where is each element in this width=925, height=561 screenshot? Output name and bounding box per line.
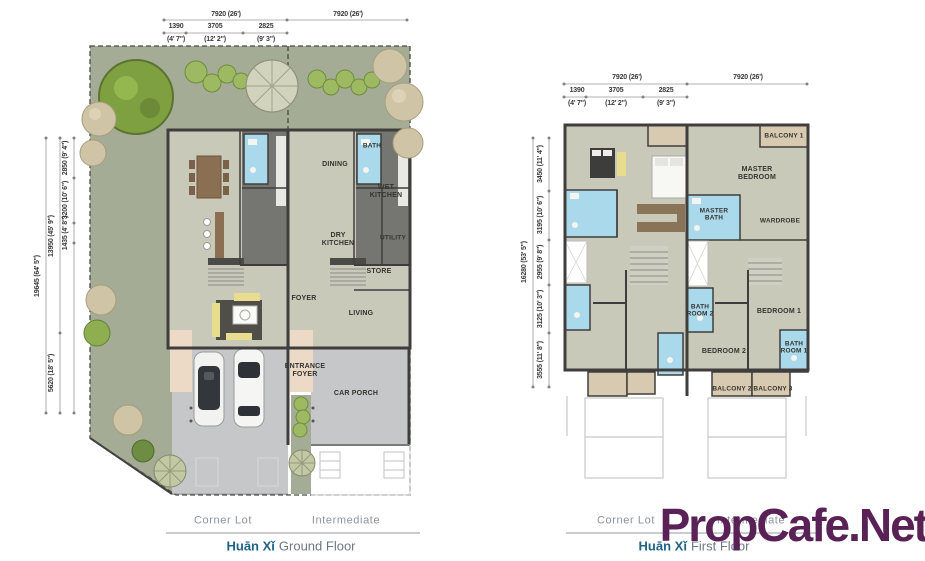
gf-title-name: Huān Xǐ <box>227 539 275 554</box>
ff-caption-corner-lot: Corner Lot <box>597 516 655 527</box>
gf-caption-corner-lot: Corner Lot <box>194 516 252 527</box>
ff-dim-left-seg: 2955 (9' 8") <box>537 245 545 280</box>
ff-dim-mm: 3705 <box>609 87 624 95</box>
watermark: PropCafe.Net <box>660 499 925 552</box>
floorplan-graphics <box>0 0 925 561</box>
ff-roof-outline <box>567 396 806 478</box>
ff-dim-left-seg: 3450 (11' 4") <box>537 145 545 183</box>
floorplan-page: 7920 (26') 7920 (26') 1390 3705 2825 (4'… <box>0 0 925 561</box>
room-label-bedroom-1: BEDROOM 1 <box>757 308 801 316</box>
ff-dim-left-total: 16280 (53' 5") <box>521 241 529 283</box>
shrub <box>82 102 116 136</box>
bush <box>84 320 110 346</box>
room-label-master-bath: MASTER BATH <box>692 208 736 223</box>
ff-dim-mm: 2825 <box>659 87 674 95</box>
shrub <box>113 405 143 435</box>
gf-dim-mm: 1390 <box>169 23 184 31</box>
room-label-bath-room-2: BATH ROOM 2 <box>683 304 717 319</box>
ff-dim-ft: (9' 3") <box>657 100 675 108</box>
room-label-car-porch: CAR PORCH <box>334 390 378 398</box>
gf-dim-mm: 2825 <box>259 23 274 31</box>
room-label-utility: UTILITY <box>380 234 406 241</box>
shrub <box>86 285 116 315</box>
gf-dim-left-seg: 1435 (4' 8") <box>62 216 70 251</box>
ff-dim-total-left: 7920 (26') <box>612 74 642 82</box>
ff-dim-left-seg: 3555 (11' 8") <box>537 341 545 379</box>
tree <box>289 450 315 476</box>
tree <box>154 455 186 487</box>
car <box>194 352 224 426</box>
shrub <box>373 49 407 83</box>
room-label-wet-kitchen: WET KITCHEN <box>363 184 409 200</box>
room-label-balcony-2: BALCONY 2 <box>712 385 751 392</box>
room-label-entrance-foyer: ENTRANCE FOYER <box>275 363 335 379</box>
gf-dim-left-seg: 2850 (9' 4") <box>62 141 70 176</box>
room-label-living: LIVING <box>349 310 374 318</box>
ff-dim-ft: (4' 7") <box>568 100 586 108</box>
car <box>234 349 264 427</box>
gf-caption-intermediate: Intermediate <box>312 516 380 527</box>
ff-dim-total-right: 7920 (26') <box>733 74 763 82</box>
room-label-master-bedroom: MASTER BEDROOM <box>726 166 788 182</box>
room-label-bedroom-2: BEDROOM 2 <box>702 348 746 356</box>
gf-dim-total-left: 7920 (26') <box>211 11 241 19</box>
gf-title-floor: Ground Floor <box>279 539 356 554</box>
ff-dim-left-seg: 3125 (10' 3") <box>537 290 545 328</box>
gf-dim-left-seg: 3200 (10' 6") <box>62 181 70 219</box>
gf-title: Huān XǐGround Floor <box>227 540 356 553</box>
gf-dim-ft: (4' 7") <box>167 36 185 44</box>
room-label-dining: DINING <box>322 161 348 169</box>
gf-dim-total-right: 7920 (26') <box>333 11 363 19</box>
gf-dim-left-mid: 13950 (45' 9") <box>48 215 56 257</box>
gf-dim-mm: 3705 <box>208 23 223 31</box>
gf-dim-ft: (12' 2") <box>204 36 226 44</box>
gf-dim-ft: (9' 3") <box>257 36 275 44</box>
gf-dim-left-mid: 5620 (18' 5") <box>48 354 56 392</box>
ff-dim-ft: (12' 2") <box>605 100 627 108</box>
room-label-balcony-3: BALCONY 3 <box>753 385 792 392</box>
bush <box>132 440 154 462</box>
room-label-wardrobe: WARDROBE <box>760 217 800 224</box>
room-label-store: STORE <box>367 268 392 276</box>
shrub <box>80 140 106 166</box>
shrub <box>393 128 423 158</box>
room-label-bath-room-1: BATH ROOM 1 <box>778 341 810 356</box>
room-label-balcony-1: BALCONY 1 <box>764 132 803 139</box>
room-label-foyer: FOYER <box>291 295 316 303</box>
tree <box>246 60 298 112</box>
ff-dim-left-seg: 3195 (10' 6") <box>537 196 545 234</box>
room-label-bath: BATH <box>363 142 381 149</box>
gf-dim-left-total: 19645 (64' 5") <box>34 255 42 297</box>
shrub <box>385 83 423 121</box>
ff-dim-mm: 1390 <box>570 87 585 95</box>
room-label-dry-kitchen: DRY KITCHEN <box>314 232 362 248</box>
